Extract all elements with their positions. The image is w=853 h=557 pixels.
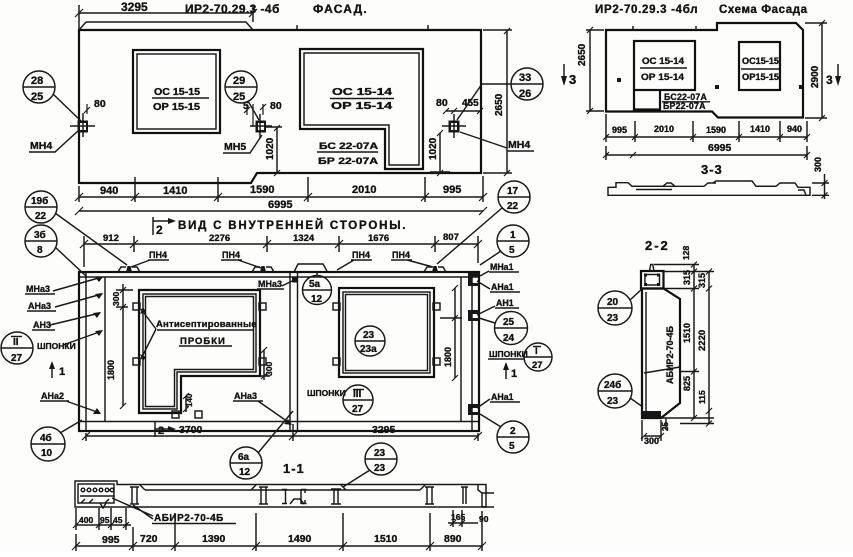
svg-text:25: 25 [233, 91, 245, 103]
svg-text:ИР2-70.29.3 -4бл: ИР2-70.29.3 -4бл [595, 4, 698, 16]
svg-text:1800: 1800 [106, 360, 116, 380]
svg-text:1490: 1490 [288, 533, 312, 545]
svg-text:3б: 3б [34, 229, 46, 241]
svg-text:23а: 23а [360, 344, 377, 355]
svg-text:ПН4: ПН4 [392, 250, 410, 260]
svg-text:300: 300 [644, 436, 659, 446]
svg-text:3700: 3700 [179, 424, 203, 436]
svg-text:ОС 15-15: ОС 15-15 [154, 87, 201, 98]
svg-text:2650: 2650 [494, 93, 505, 116]
svg-text:23: 23 [374, 448, 386, 459]
svg-text:80: 80 [270, 100, 282, 112]
svg-text:8: 8 [37, 245, 43, 256]
svg-text:25: 25 [503, 317, 515, 328]
svg-text:940: 940 [100, 185, 118, 197]
svg-text:2276: 2276 [209, 233, 230, 244]
svg-text:Схема Фасада: Схема Фасада [719, 4, 808, 16]
svg-text:1410: 1410 [750, 124, 770, 134]
svg-text:995: 995 [102, 534, 120, 546]
svg-text:ОР 15-14: ОР 15-14 [641, 72, 685, 83]
svg-text:1590: 1590 [250, 184, 274, 196]
svg-text:АНа1: АНа1 [491, 282, 514, 292]
svg-text:ОС15-15: ОС15-15 [742, 56, 779, 66]
svg-text:ВИД С ВНУТРЕННЕЙ СТОРОНЫ.: ВИД С ВНУТРЕННЕЙ СТОРОНЫ. [178, 219, 407, 232]
svg-text:МН5: МН5 [224, 141, 246, 153]
svg-text:МН4: МН4 [30, 140, 52, 152]
svg-text:ИР2-70.29.3 -4б: ИР2-70.29.3 -4б [185, 2, 280, 16]
svg-text:ШПОНКИ: ШПОНКИ [489, 349, 528, 359]
svg-text:995: 995 [443, 184, 461, 196]
svg-text:12: 12 [239, 467, 251, 478]
svg-text:95: 95 [100, 515, 110, 525]
svg-text:2650: 2650 [577, 43, 588, 66]
svg-text:24: 24 [503, 333, 515, 344]
svg-text:315: 315 [682, 270, 692, 285]
svg-text:29: 29 [233, 75, 245, 87]
svg-text:ШПОНКИ: ШПОНКИ [307, 388, 346, 398]
svg-text:825: 825 [682, 376, 692, 391]
svg-text:12: 12 [311, 294, 323, 305]
svg-text:1410: 1410 [163, 185, 187, 197]
svg-text:МН4: МН4 [508, 139, 530, 151]
svg-text:1: 1 [511, 368, 517, 380]
svg-text:300: 300 [813, 157, 823, 172]
svg-text:2: 2 [510, 426, 516, 437]
svg-text:1-1: 1-1 [283, 461, 305, 476]
svg-text:20: 20 [607, 297, 619, 308]
svg-text:МНа3: МНа3 [258, 279, 282, 289]
svg-text:3295: 3295 [121, 0, 148, 14]
svg-text:1: 1 [510, 230, 516, 241]
svg-text:АБИР2-70-4Б: АБИР2-70-4Б [154, 513, 224, 524]
svg-text:940: 940 [787, 124, 802, 134]
svg-text:28: 28 [31, 75, 43, 87]
svg-text:1800: 1800 [443, 347, 453, 367]
svg-text:23: 23 [374, 463, 386, 474]
svg-text:I: I [535, 346, 538, 357]
svg-text:5: 5 [509, 245, 515, 256]
svg-text:22: 22 [35, 211, 47, 222]
svg-text:МНа1: МНа1 [490, 262, 514, 272]
svg-text:АБИР2-70-4Б: АБИР2-70-4Б [665, 326, 675, 384]
svg-text:890: 890 [444, 533, 462, 545]
svg-text:ОС 15-14: ОС 15-14 [332, 87, 393, 98]
svg-text:1020: 1020 [265, 137, 276, 160]
svg-text:315: 315 [697, 273, 707, 288]
svg-text:3: 3 [569, 72, 576, 87]
svg-text:80: 80 [94, 98, 106, 110]
svg-text:ФАСАД.: ФАСАД. [313, 2, 368, 16]
svg-text:5: 5 [509, 441, 515, 452]
svg-text:1390: 1390 [202, 533, 226, 545]
svg-text:АНа2: АНа2 [41, 391, 64, 401]
svg-text:2010: 2010 [654, 124, 674, 134]
svg-text:6а: 6а [238, 452, 250, 463]
svg-text:ОР15-15: ОР15-15 [742, 72, 779, 82]
svg-text:БС 22-07А: БС 22-07А [319, 141, 378, 152]
svg-text:2: 2 [158, 425, 164, 437]
svg-text:400: 400 [79, 515, 93, 525]
svg-text:АНа3: АНа3 [28, 301, 51, 311]
svg-text:ОР 15-15: ОР 15-15 [153, 102, 201, 113]
svg-text:33: 33 [519, 72, 531, 84]
svg-text:25: 25 [31, 91, 43, 103]
svg-text:912: 912 [103, 233, 119, 244]
svg-text:3: 3 [826, 73, 833, 87]
svg-text:5а: 5а [309, 279, 321, 290]
svg-text:3295: 3295 [372, 424, 396, 436]
svg-text:III: III [353, 389, 362, 400]
svg-text:1590: 1590 [706, 125, 726, 135]
svg-text:10: 10 [41, 448, 53, 459]
svg-text:АН3: АН3 [33, 320, 51, 330]
svg-text:27: 27 [352, 404, 364, 415]
svg-text:27: 27 [532, 360, 543, 371]
svg-text:1324: 1324 [293, 233, 315, 244]
svg-text:6995: 6995 [268, 199, 292, 211]
svg-text:ПН4: ПН4 [352, 250, 370, 260]
svg-text:II: II [13, 337, 19, 348]
svg-text:19б: 19б [31, 195, 48, 207]
svg-text:АНа1: АНа1 [491, 392, 514, 402]
svg-text:995: 995 [612, 125, 627, 135]
svg-text:6995: 6995 [708, 142, 732, 154]
svg-text:3-3: 3-3 [701, 162, 723, 177]
svg-text:АН1: АН1 [496, 298, 514, 308]
svg-text:720: 720 [140, 533, 158, 545]
svg-text:300: 300 [111, 292, 121, 306]
svg-text:БР22-07А: БР22-07А [663, 101, 706, 111]
svg-text:ОР 15-14: ОР 15-14 [331, 101, 393, 112]
svg-text:1510: 1510 [682, 323, 692, 343]
svg-text:128: 128 [681, 246, 691, 260]
svg-text:ПН4: ПН4 [149, 250, 167, 260]
svg-text:115: 115 [697, 390, 707, 404]
svg-text:1676: 1676 [368, 233, 389, 244]
svg-text:2010: 2010 [352, 184, 376, 196]
svg-text:17: 17 [507, 186, 519, 197]
svg-text:БР 22-07А: БР 22-07А [318, 156, 378, 167]
svg-text:1510: 1510 [374, 533, 398, 545]
svg-text:24б: 24б [604, 379, 621, 391]
svg-text:23: 23 [607, 313, 619, 324]
svg-text:2900: 2900 [810, 65, 821, 88]
svg-text:80: 80 [436, 97, 448, 109]
svg-text:Антисептированные: Антисептированные [156, 319, 257, 330]
svg-text:23: 23 [607, 396, 619, 407]
svg-text:22: 22 [507, 201, 519, 212]
svg-text:27: 27 [11, 353, 23, 364]
svg-text:МНа3: МНа3 [26, 284, 50, 294]
svg-text:АНа3: АНа3 [234, 391, 257, 401]
svg-text:2-2: 2-2 [645, 238, 670, 253]
svg-text:807: 807 [443, 232, 459, 243]
svg-text:1020: 1020 [428, 137, 439, 160]
svg-text:ОС 15-14: ОС 15-14 [642, 56, 685, 67]
svg-text:2: 2 [156, 223, 163, 237]
svg-text:90: 90 [479, 514, 489, 524]
svg-text:45: 45 [113, 515, 123, 525]
svg-text:26: 26 [519, 88, 531, 100]
svg-text:ПН4: ПН4 [222, 250, 240, 260]
svg-text:23: 23 [363, 330, 375, 341]
svg-text:1: 1 [59, 366, 65, 378]
svg-text:2220: 2220 [697, 330, 708, 351]
svg-text:4б: 4б [40, 432, 52, 444]
